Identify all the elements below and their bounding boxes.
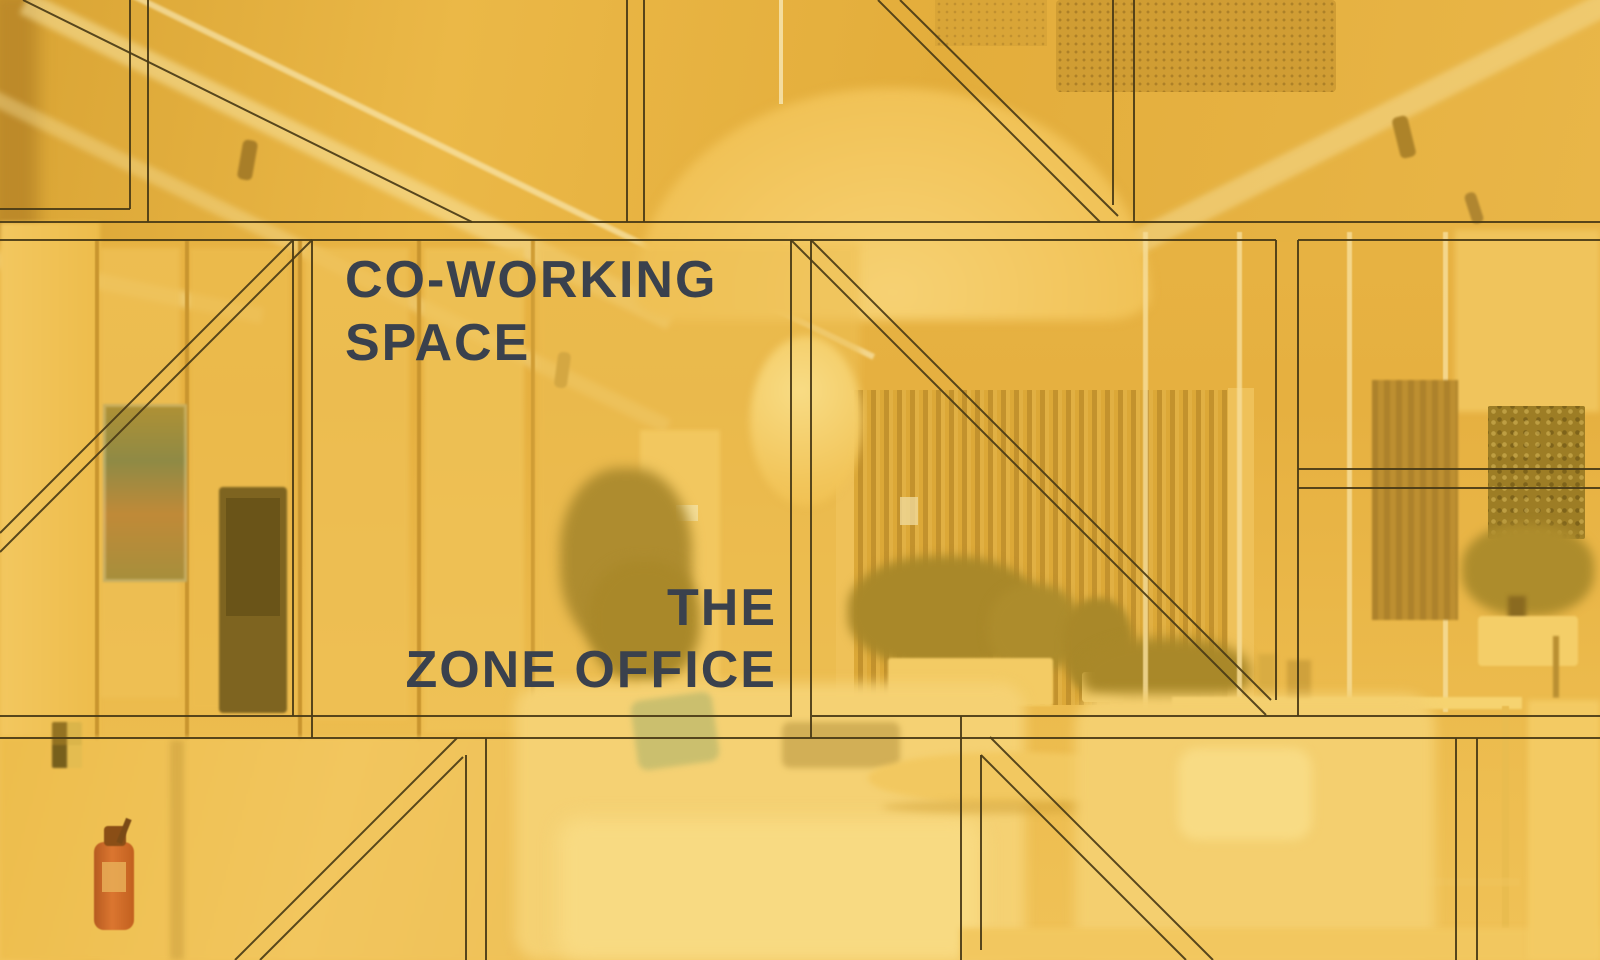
subheading-the-zone-office: THE ZONE OFFICE xyxy=(405,577,777,701)
heading-coworking-space: CO-WORKING SPACE xyxy=(345,249,717,375)
heading-line2: SPACE xyxy=(345,312,717,375)
subheading-line2: ZONE OFFICE xyxy=(405,639,777,701)
blueprint-line-pattern xyxy=(0,0,1600,960)
subheading-line1: THE xyxy=(405,577,777,639)
diagonal-lines xyxy=(0,0,1271,960)
coworking-poster: CO-WORKING SPACE THE ZONE OFFICE xyxy=(0,0,1600,960)
horizontal-lines xyxy=(0,209,1600,738)
heading-line1: CO-WORKING xyxy=(345,249,717,312)
vertical-lines xyxy=(130,0,1477,960)
